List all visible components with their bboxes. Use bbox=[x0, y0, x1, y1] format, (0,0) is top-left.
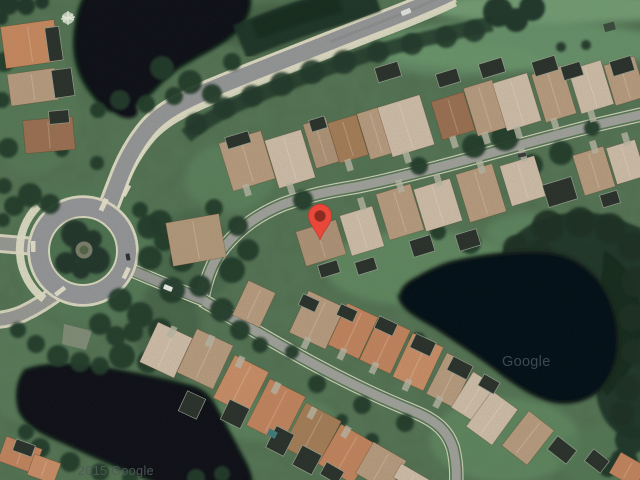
svg-text:Google: Google bbox=[502, 354, 551, 370]
svg-text:2015 Google: 2015 Google bbox=[78, 464, 154, 478]
